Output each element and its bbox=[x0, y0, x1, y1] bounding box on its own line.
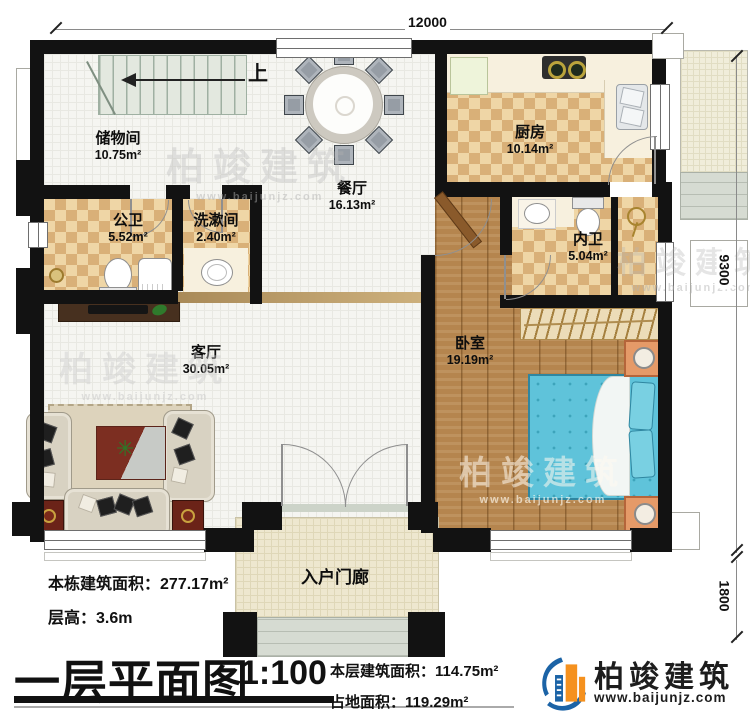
window bbox=[490, 530, 632, 550]
stat-building-total: 本栋建筑面积：277.17m² bbox=[48, 570, 229, 594]
wall-segment bbox=[410, 40, 652, 54]
wall-segment bbox=[421, 255, 435, 533]
wall-segment bbox=[166, 185, 190, 199]
stat-floor-height: 层高：3.6m bbox=[48, 604, 132, 628]
room-label-storage: 储物间 10.75m² bbox=[68, 131, 168, 162]
dining-chair bbox=[334, 145, 354, 165]
stairs-arrow-shaft bbox=[135, 79, 245, 81]
room-area: 2.40m² bbox=[176, 230, 256, 244]
porch-steps bbox=[257, 617, 410, 657]
side-table-knob bbox=[42, 509, 56, 523]
bed-pillow bbox=[628, 429, 655, 479]
wall-segment bbox=[250, 185, 262, 304]
stat-value: 277.17m² bbox=[160, 576, 229, 593]
stairs-up-label: 上 bbox=[248, 57, 268, 86]
dimension-line bbox=[736, 57, 737, 553]
wall-segment bbox=[222, 185, 250, 199]
wall-segment bbox=[658, 300, 672, 542]
terrace-opening bbox=[652, 33, 684, 59]
room-name: 入户门廊 bbox=[275, 568, 395, 587]
terrace-steps bbox=[680, 172, 748, 220]
room-label-bedroom: 卧室 19.19m² bbox=[425, 336, 515, 367]
side-table-knob bbox=[181, 509, 195, 523]
window bbox=[276, 38, 412, 58]
room-name: 内卫 bbox=[548, 232, 628, 249]
dining-table-center bbox=[335, 96, 355, 116]
floor-drain bbox=[49, 268, 64, 283]
stove-burner bbox=[548, 61, 566, 79]
bed-sheet bbox=[592, 376, 630, 496]
stairs-arrow-head bbox=[121, 73, 136, 87]
room-area: 30.05m² bbox=[161, 362, 251, 376]
room-name: 洗漱间 bbox=[176, 213, 256, 230]
room-area: 5.04m² bbox=[548, 249, 628, 263]
nightstand-lamp bbox=[633, 347, 655, 369]
room-name: 卧室 bbox=[425, 336, 515, 353]
stat-value: 119.29m² bbox=[405, 694, 468, 711]
wall-segment bbox=[658, 182, 672, 197]
wall-segment bbox=[435, 182, 610, 197]
room-label-washroom: 洗漱间 2.40m² bbox=[176, 213, 256, 244]
dining-chair bbox=[284, 95, 304, 115]
dining-chair bbox=[384, 95, 404, 115]
brand-site: www.baijunjz.com bbox=[594, 690, 727, 705]
brand-logo-icon bbox=[536, 652, 590, 718]
room-name: 公卫 bbox=[88, 213, 168, 230]
room-name: 客厅 bbox=[161, 345, 251, 362]
wall-corner bbox=[12, 502, 44, 536]
stat-value: 3.6m bbox=[96, 610, 132, 627]
room-label-kitchen: 厨房 10.14m² bbox=[485, 125, 575, 156]
wall-segment bbox=[30, 185, 130, 199]
stat-label: 占地面积： bbox=[330, 694, 405, 711]
dimension-porch-depth: 1800 bbox=[717, 577, 733, 614]
stat-floor-area: 本层建筑面积：114.75m² bbox=[330, 660, 498, 681]
nightstand-lamp bbox=[634, 503, 656, 525]
coffee-table-plant: ✳ bbox=[116, 438, 134, 460]
wall-segment bbox=[242, 502, 282, 530]
washroom-sink-basin bbox=[207, 264, 227, 281]
wall-segment bbox=[500, 295, 672, 308]
dimension-tick bbox=[731, 631, 744, 644]
room-label-porch: 入户门廊 bbox=[275, 568, 395, 587]
room-name: 储物间 bbox=[68, 131, 168, 148]
dimension-height: 9300 bbox=[717, 251, 733, 288]
tv bbox=[88, 305, 148, 314]
floor-plan-canvas: 上 bbox=[0, 0, 750, 718]
window-sill bbox=[490, 552, 632, 561]
window bbox=[44, 530, 206, 550]
sofa-pillow bbox=[171, 467, 189, 485]
stat-label: 层高： bbox=[48, 610, 96, 627]
dimension-line bbox=[55, 29, 667, 30]
floor-threshold bbox=[178, 292, 421, 303]
wall-pilaster bbox=[16, 160, 30, 216]
wall-segment bbox=[435, 54, 447, 182]
window-sill bbox=[44, 552, 206, 561]
wall-segment bbox=[500, 197, 512, 255]
stat-label: 本栋建筑面积： bbox=[48, 576, 160, 593]
brand-logo: 柏竣建筑 www.baijunjz.com bbox=[536, 650, 746, 716]
bed-pillow bbox=[628, 381, 655, 431]
stat-label: 本层建筑面积： bbox=[330, 663, 435, 680]
wall-segment bbox=[30, 40, 276, 54]
ensuite-sink bbox=[524, 203, 550, 224]
porch-pillar bbox=[408, 612, 445, 657]
dimension-tick bbox=[50, 22, 63, 35]
room-name: 厨房 bbox=[485, 125, 575, 142]
room-area: 5.52m² bbox=[88, 230, 168, 244]
room-label-public-bath: 公卫 5.52m² bbox=[88, 213, 168, 244]
dimension-width: 12000 bbox=[405, 14, 450, 30]
title-underline-thick bbox=[14, 696, 334, 703]
window bbox=[28, 222, 48, 248]
room-area: 16.13m² bbox=[302, 198, 402, 212]
dimension-line bbox=[736, 560, 737, 640]
wall-segment bbox=[30, 290, 178, 304]
fridge bbox=[450, 57, 488, 95]
room-area: 10.14m² bbox=[485, 142, 575, 156]
wall-segment bbox=[433, 528, 491, 552]
wall-pilaster bbox=[16, 268, 30, 334]
stove-burner bbox=[568, 61, 586, 79]
scale-label: 1:100 bbox=[240, 654, 327, 693]
room-label-dining: 餐厅 16.13m² bbox=[302, 181, 402, 212]
room-label-ensuite: 内卫 5.04m² bbox=[548, 232, 628, 263]
room-area: 19.19m² bbox=[425, 353, 515, 367]
side-terrace bbox=[680, 50, 748, 174]
stat-value: 114.75m² bbox=[435, 663, 498, 680]
wall-segment bbox=[204, 528, 254, 552]
room-label-living: 客厅 30.05m² bbox=[161, 345, 251, 376]
room-name: 餐厅 bbox=[302, 181, 402, 198]
window bbox=[656, 242, 674, 302]
room-area: 10.75m² bbox=[68, 148, 168, 162]
stat-footprint: 占地面积：119.29m² bbox=[330, 691, 468, 712]
